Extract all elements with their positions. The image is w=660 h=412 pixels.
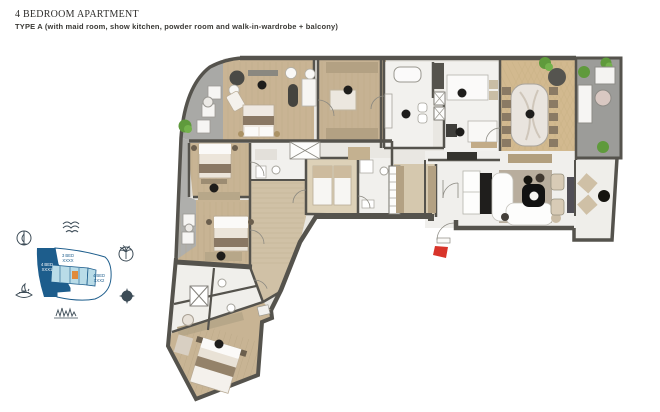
svg-text:XXX2: XXX2 <box>94 278 105 283</box>
svg-text:XXX1: XXX1 <box>42 267 53 272</box>
svg-text:XXXX: XXXX <box>62 258 73 263</box>
